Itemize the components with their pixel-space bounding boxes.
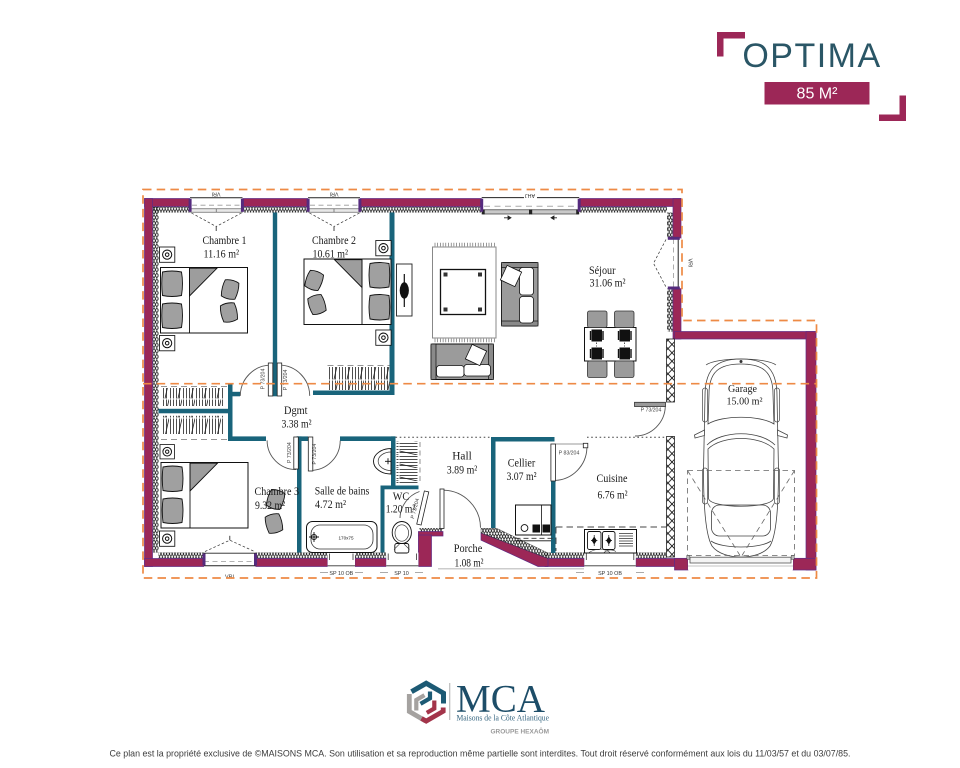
svg-text:Garage: Garage	[728, 384, 757, 395]
svg-text:3.07 m²: 3.07 m²	[507, 471, 537, 483]
svg-text:Séjour: Séjour	[589, 265, 616, 277]
svg-text:VRI: VRI	[330, 191, 339, 197]
svg-text:SP 10: SP 10	[394, 571, 409, 577]
svg-text:P 73/204: P 73/204	[312, 444, 318, 465]
svg-text:3.38 m²: 3.38 m²	[282, 419, 312, 431]
svg-text:WC: WC	[393, 491, 410, 503]
svg-text:Cellier: Cellier	[508, 458, 536, 470]
svg-text:Chambre 3: Chambre 3	[255, 486, 300, 498]
svg-text:11.16 m²: 11.16 m²	[204, 249, 240, 261]
svg-text:31.06 m²: 31.06 m²	[590, 278, 626, 290]
svg-text:P 73/204: P 73/204	[261, 369, 267, 390]
svg-text:P 83/204: P 83/204	[559, 451, 580, 457]
svg-text:15.00 m²: 15.00 m²	[727, 397, 763, 408]
svg-text:SP 10 OB: SP 10 OB	[329, 571, 353, 577]
svg-text:Hall: Hall	[452, 451, 472, 463]
svg-text:GROUPE HEXAÔM: GROUPE HEXAÔM	[491, 727, 550, 736]
svg-text:3.89 m²: 3.89 m²	[447, 465, 478, 477]
svg-text:1.08 m²: 1.08 m²	[455, 558, 484, 570]
svg-text:Maisons de la Côte Atlantique: Maisons de la Côte Atlantique	[457, 714, 550, 723]
svg-text:Salle de bains: Salle de bains	[315, 486, 370, 498]
svg-text:P 73/204: P 73/204	[641, 408, 662, 414]
svg-text:Cuisine: Cuisine	[597, 473, 628, 485]
svg-text:6.76 m²: 6.76 m²	[598, 490, 628, 502]
svg-text:10.61 m²: 10.61 m²	[313, 249, 349, 261]
svg-text:Dgmt: Dgmt	[284, 405, 308, 417]
svg-text:AHJ: AHJ	[525, 192, 535, 198]
svg-text:Chambre 2: Chambre 2	[312, 235, 356, 247]
svg-text:SP 10 OB: SP 10 OB	[598, 571, 622, 577]
svg-text:VRI: VRI	[212, 191, 221, 197]
svg-text:9.32 m²: 9.32 m²	[255, 500, 285, 512]
svg-text:1.20 m²: 1.20 m²	[386, 504, 416, 516]
svg-text:P 73/204: P 73/204	[283, 369, 289, 390]
svg-text:Ce plan est la propriété exclu: Ce plan est la propriété exclusive de ©M…	[110, 749, 851, 759]
svg-text:Porche: Porche	[454, 543, 483, 555]
svg-text:4.72 m²: 4.72 m²	[315, 499, 346, 511]
svg-text:VRI: VRI	[687, 259, 693, 268]
svg-text:OPTIMA: OPTIMA	[742, 37, 881, 75]
svg-text:85 M²: 85 M²	[797, 86, 839, 103]
svg-text:170x75: 170x75	[338, 536, 354, 541]
svg-text:Chambre 1: Chambre 1	[203, 235, 247, 247]
svg-text:P 73/204: P 73/204	[287, 442, 293, 463]
